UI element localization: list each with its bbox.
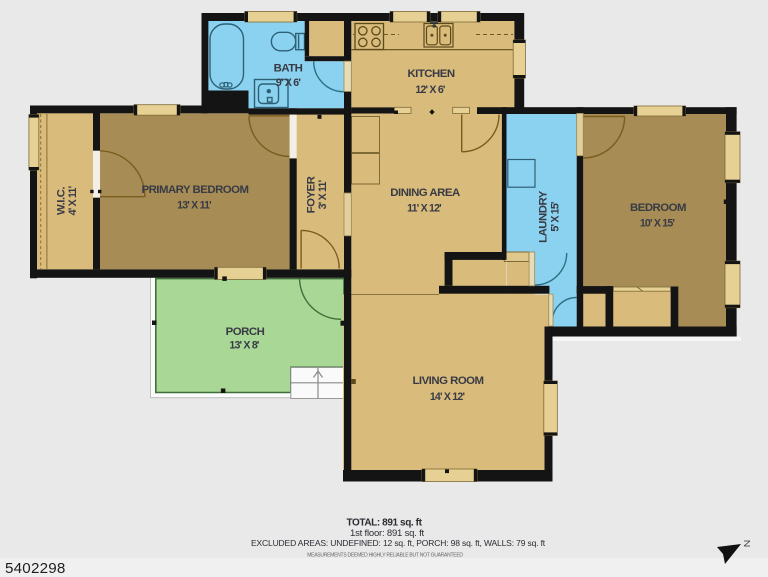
svg-text:KITCHEN: KITCHEN — [407, 68, 454, 80]
svg-text:W.I.C.: W.I.C. — [55, 187, 67, 215]
svg-text:12' X 6': 12' X 6' — [415, 84, 445, 96]
svg-text:3' X 11': 3' X 11' — [317, 180, 329, 209]
svg-text:9' X 6': 9' X 6' — [276, 77, 300, 89]
svg-text:4' X 11': 4' X 11' — [67, 186, 79, 215]
svg-text:13' X 8': 13' X 8' — [229, 340, 259, 352]
svg-text:14' X 12': 14' X 12' — [430, 391, 465, 403]
svg-text:EXCLUDED AREAS: UNDEFINED: 12: EXCLUDED AREAS: UNDEFINED: 12 sq. ft, PO… — [251, 538, 546, 548]
svg-text:PORCH: PORCH — [226, 326, 265, 338]
svg-text:MEASUREMENTS DEEMED HIGHLY REL: MEASUREMENTS DEEMED HIGHLY RELIABLE BUT … — [307, 553, 463, 559]
svg-text:13' X 11': 13' X 11' — [177, 200, 211, 212]
svg-text:LIVING ROOM: LIVING ROOM — [412, 375, 483, 387]
svg-text:BATH: BATH — [274, 62, 303, 74]
svg-text:11' X 12': 11' X 12' — [407, 203, 441, 215]
svg-text:5' X 15': 5' X 15' — [550, 202, 562, 232]
svg-text:LAUNDRY: LAUNDRY — [538, 190, 550, 243]
svg-text:10' X 15': 10' X 15' — [640, 218, 675, 230]
svg-text:5402298: 5402298 — [5, 560, 66, 577]
svg-text:BEDROOM: BEDROOM — [630, 202, 686, 214]
svg-text:PRIMARY BEDROOM: PRIMARY BEDROOM — [141, 184, 248, 196]
svg-text:DINING AREA: DINING AREA — [390, 187, 460, 199]
svg-text:FOYER: FOYER — [306, 176, 318, 213]
